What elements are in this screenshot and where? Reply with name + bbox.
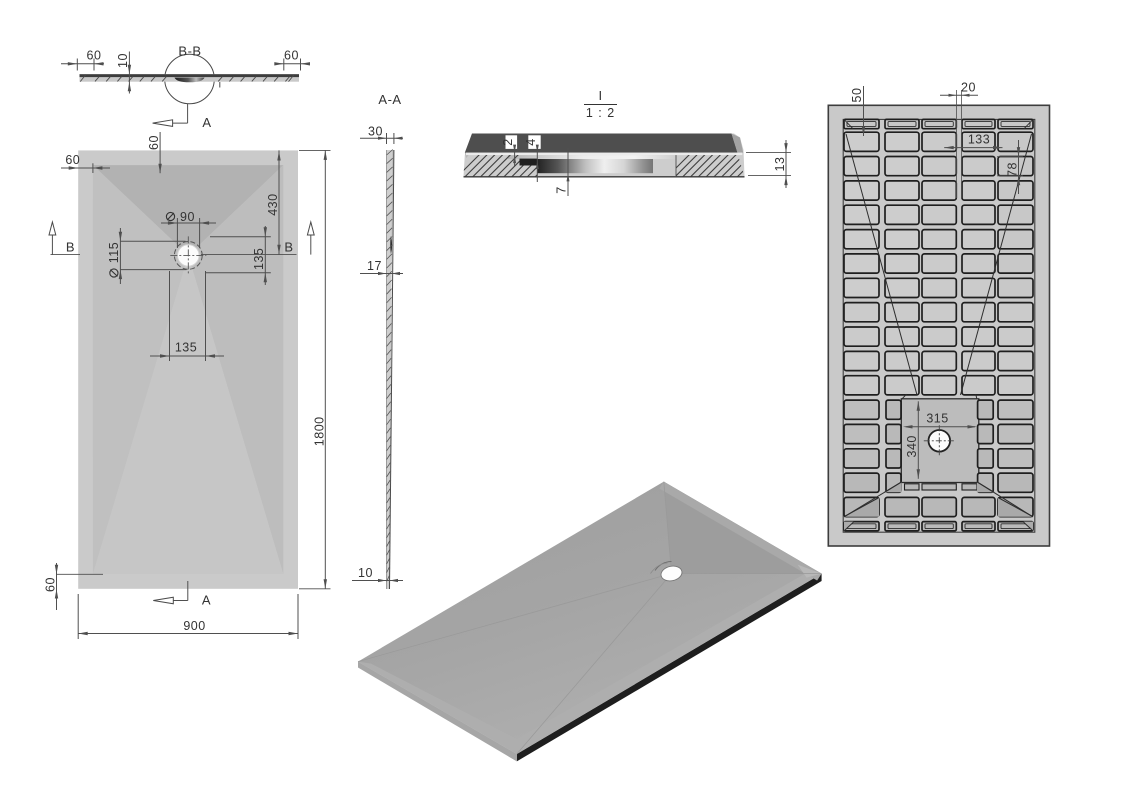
- svg-text:4: 4: [524, 138, 538, 145]
- svg-text:135: 135: [252, 248, 266, 270]
- svg-text:20: 20: [961, 81, 976, 95]
- svg-text:I: I: [598, 88, 602, 103]
- svg-text:A: A: [202, 115, 211, 130]
- svg-text:60: 60: [65, 153, 80, 167]
- svg-text:50: 50: [850, 88, 864, 103]
- svg-text:2: 2: [501, 138, 515, 145]
- svg-text:1 : 2: 1 : 2: [586, 106, 615, 120]
- svg-text:90: 90: [180, 210, 195, 224]
- svg-text:A: A: [202, 593, 211, 608]
- svg-text:78: 78: [1005, 162, 1019, 177]
- svg-text:133: 133: [968, 133, 990, 147]
- svg-text:60: 60: [284, 49, 299, 63]
- svg-text:900: 900: [183, 619, 205, 633]
- svg-text:A-A: A-A: [378, 92, 401, 107]
- svg-text:315: 315: [926, 412, 948, 426]
- svg-text:60: 60: [147, 135, 161, 150]
- svg-text:10: 10: [116, 53, 130, 68]
- svg-text:430: 430: [266, 193, 280, 215]
- svg-text:B: B: [66, 240, 75, 255]
- svg-text:7: 7: [555, 186, 569, 193]
- svg-text:10: 10: [358, 566, 373, 580]
- svg-text:B: B: [284, 240, 293, 255]
- svg-text:30: 30: [368, 124, 383, 138]
- svg-text:13: 13: [773, 157, 787, 172]
- svg-text:60: 60: [87, 49, 102, 63]
- svg-text:135: 135: [175, 341, 197, 355]
- svg-text:B-B: B-B: [178, 44, 201, 59]
- svg-text:60: 60: [43, 577, 57, 592]
- svg-text:17: 17: [367, 259, 382, 273]
- svg-text:340: 340: [905, 435, 919, 457]
- svg-text:115: 115: [107, 242, 121, 263]
- svg-text:1800: 1800: [313, 416, 327, 446]
